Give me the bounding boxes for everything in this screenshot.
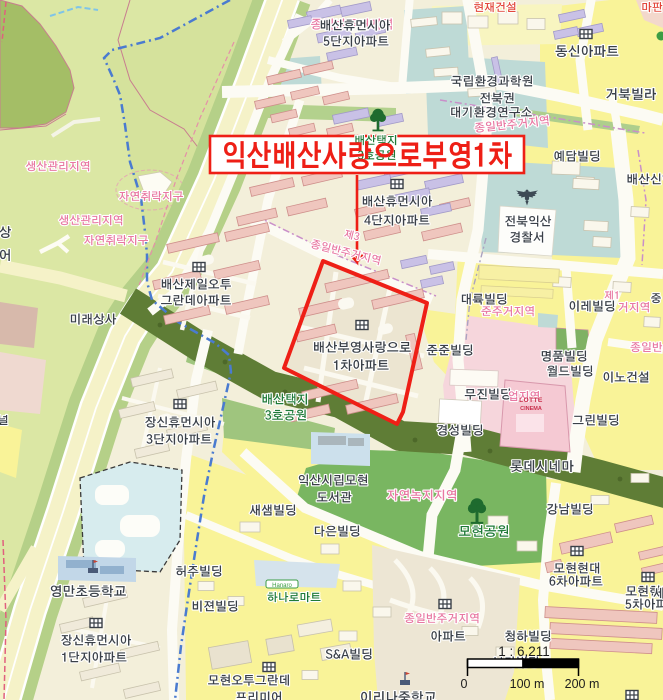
svg-text:1 : 6,211: 1 : 6,211 xyxy=(498,644,550,659)
svg-text:Hanaro: Hanaro xyxy=(272,583,292,589)
svg-text:CINEMA: CINEMA xyxy=(520,406,542,412)
svg-text:LOTTE: LOTTE xyxy=(519,397,543,404)
svg-text:0: 0 xyxy=(461,677,468,691)
svg-text:200 m: 200 m xyxy=(565,677,600,691)
svg-text:100 m: 100 m xyxy=(510,677,545,691)
